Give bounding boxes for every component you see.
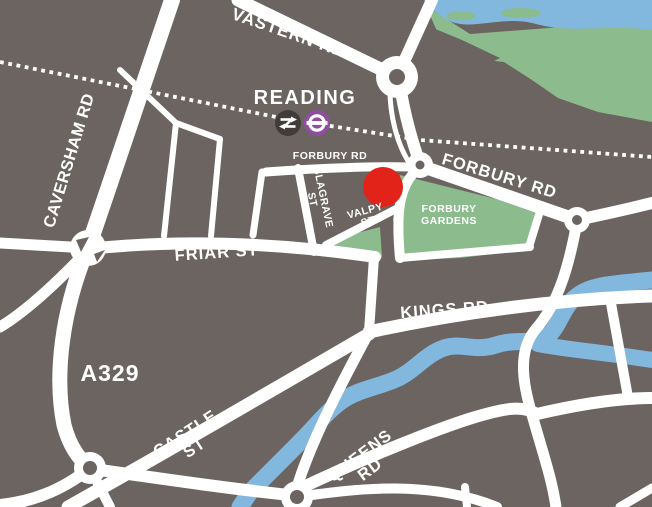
label-reading-station: READING	[254, 87, 357, 109]
label-forbury-rd-west: FORBURY RD	[293, 150, 367, 162]
river-island	[446, 12, 476, 21]
roundabout-island	[416, 161, 425, 170]
roundabout-island	[389, 69, 405, 85]
roundabout-island	[572, 215, 582, 225]
national-rail-icon	[275, 110, 301, 136]
roundabout-island	[83, 461, 97, 475]
gyratory-junction	[70, 230, 106, 266]
label-a329: A329	[81, 360, 140, 386]
location-marker[interactable]	[363, 167, 403, 207]
label-forbury-gardens: FORBURYGARDENS	[421, 203, 477, 227]
elizabeth-line-roundel-icon	[304, 110, 330, 136]
road-minor	[465, 487, 467, 507]
roundabout-island	[290, 490, 304, 504]
road-market-link	[369, 257, 374, 332]
map-canvas: VASTERN RDCAVERSHAM RDREADINGFORBURY RDB…	[0, 0, 652, 507]
river-island	[501, 8, 541, 18]
